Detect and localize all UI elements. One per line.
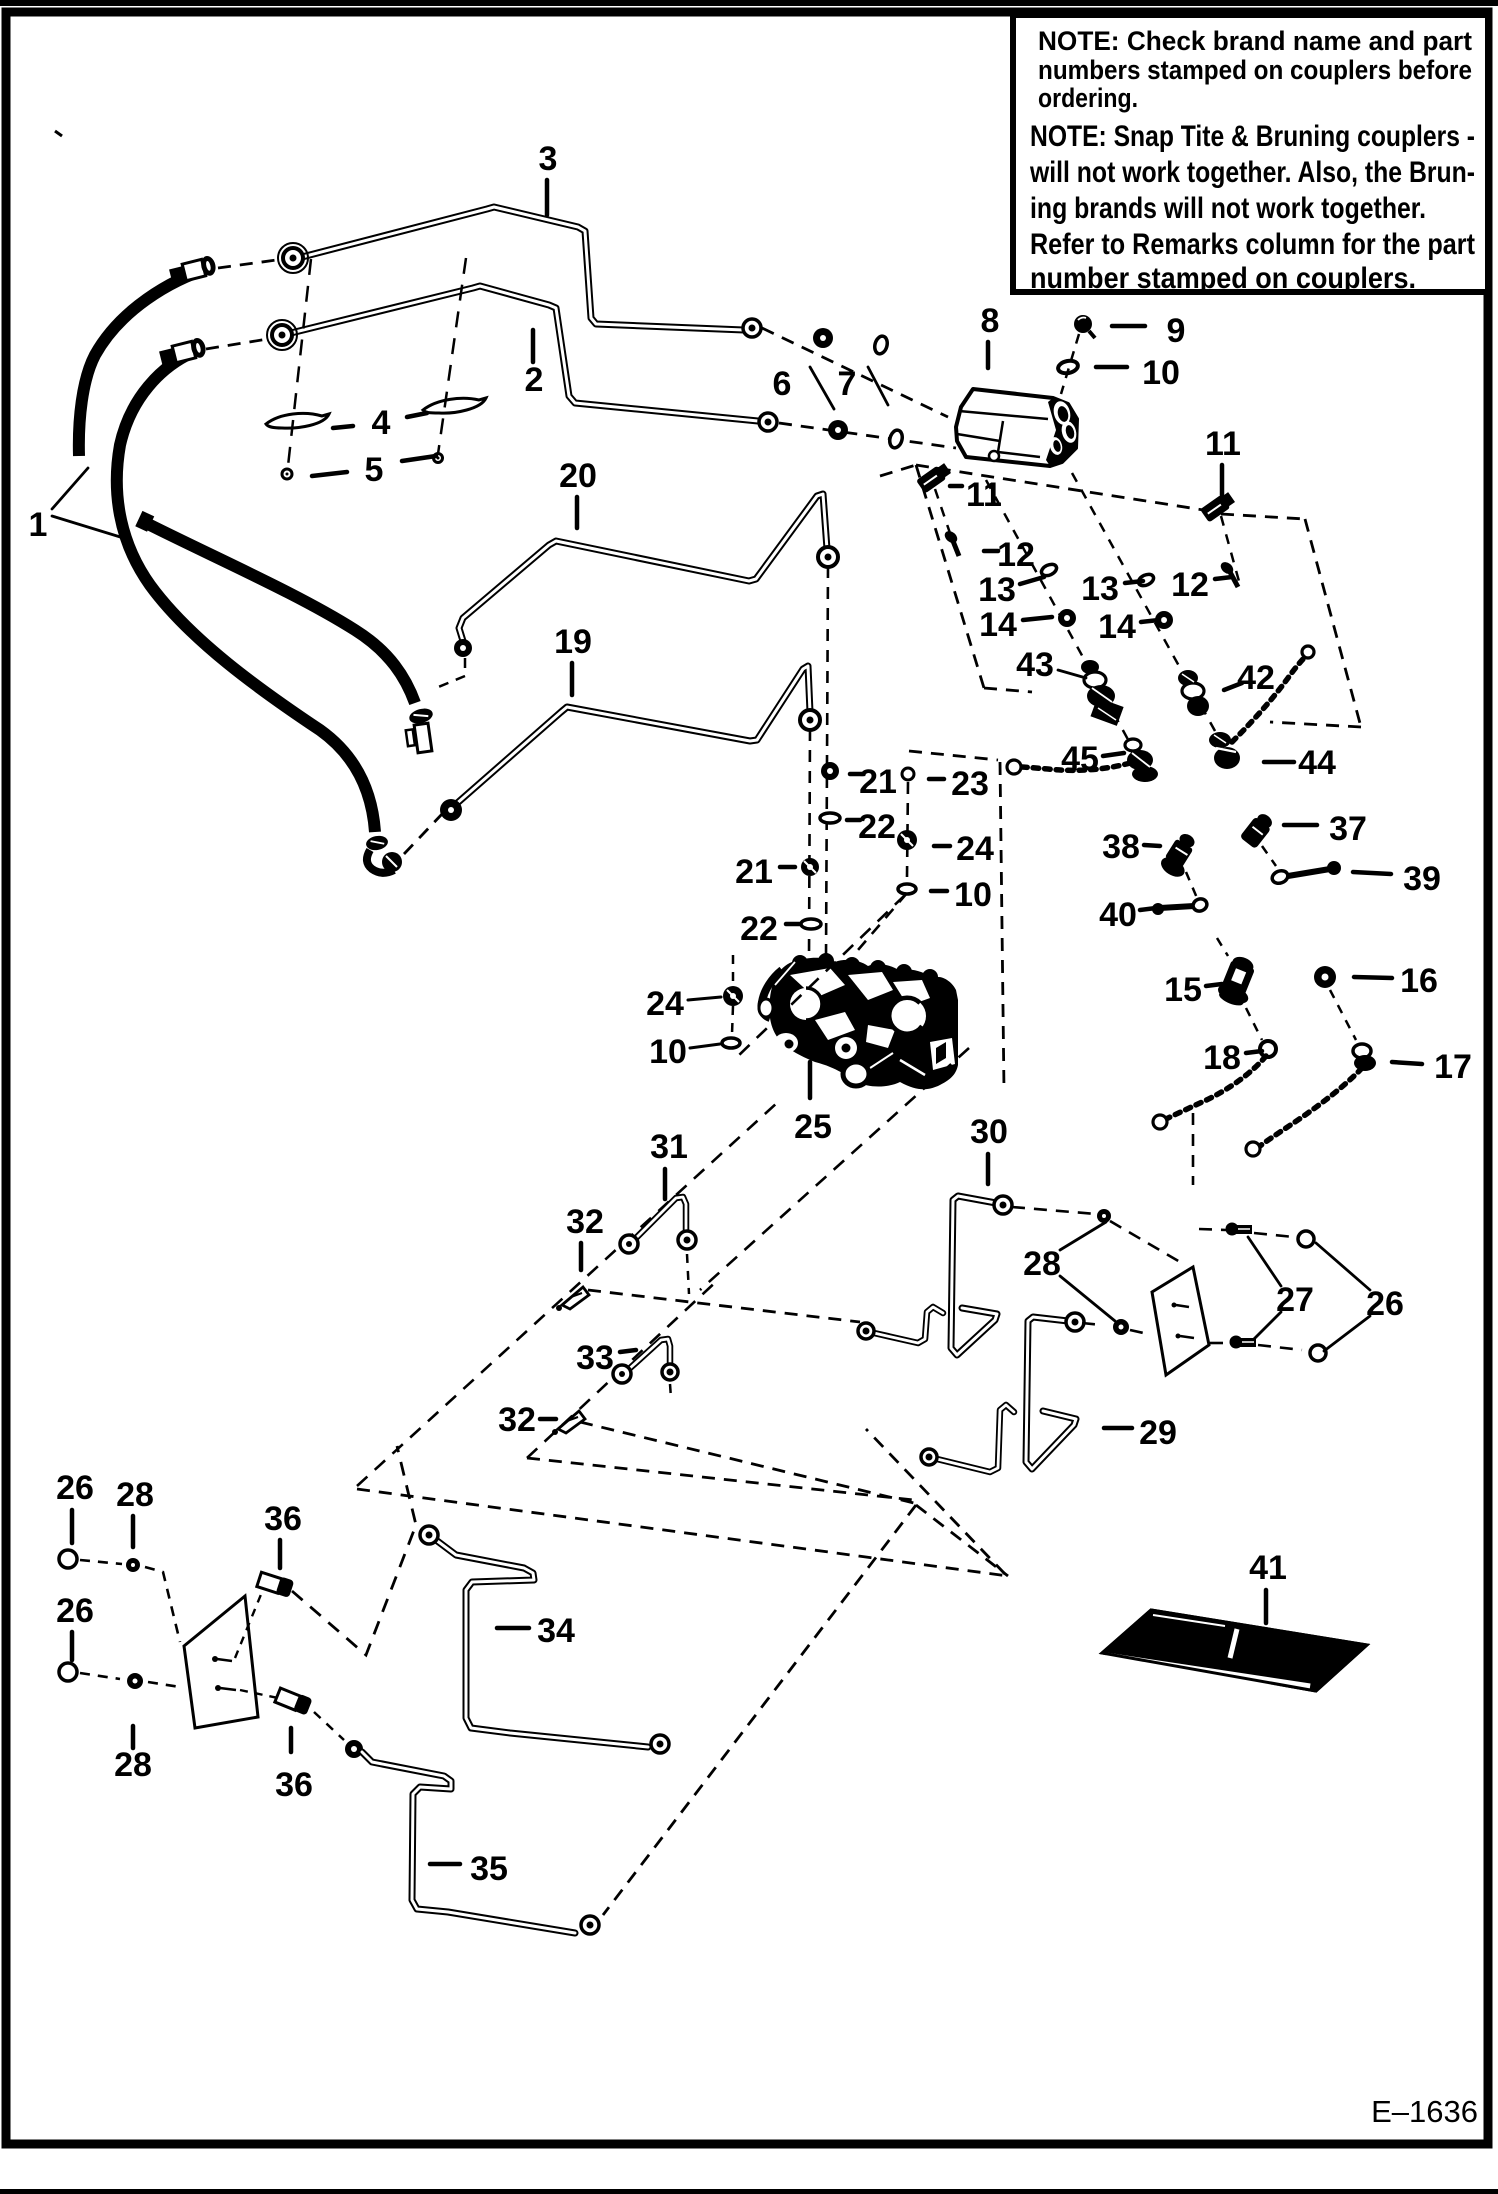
- svg-text:3: 3: [539, 140, 558, 178]
- svg-text:36: 36: [275, 1766, 313, 1804]
- svg-text:20: 20: [559, 457, 597, 495]
- svg-text:4: 4: [372, 404, 391, 442]
- svg-text:26: 26: [1366, 1285, 1404, 1323]
- svg-text:25: 25: [794, 1108, 832, 1146]
- svg-text:number stamped on couplers.: number stamped on couplers.: [1030, 262, 1416, 295]
- svg-text:34: 34: [537, 1612, 575, 1650]
- svg-text:Refer to Remarks column for th: Refer to Remarks column for the part: [1030, 228, 1475, 261]
- svg-text:8: 8: [981, 302, 1000, 340]
- svg-text:42: 42: [1237, 659, 1275, 697]
- svg-text:19: 19: [554, 623, 592, 661]
- svg-text:16: 16: [1400, 962, 1438, 1000]
- svg-text:30: 30: [970, 1113, 1008, 1151]
- svg-text:10: 10: [954, 876, 992, 914]
- svg-text:29: 29: [1139, 1414, 1177, 1452]
- svg-text:10: 10: [649, 1033, 687, 1071]
- svg-text:17: 17: [1434, 1048, 1472, 1086]
- svg-text:13: 13: [978, 571, 1016, 609]
- svg-text:33: 33: [576, 1339, 614, 1377]
- svg-text:45: 45: [1061, 740, 1099, 778]
- svg-text:15: 15: [1164, 971, 1202, 1009]
- svg-text:12: 12: [1171, 566, 1209, 604]
- svg-text:11: 11: [1205, 425, 1241, 463]
- svg-text:22: 22: [740, 910, 778, 948]
- svg-text:31: 31: [650, 1128, 688, 1166]
- svg-text:14: 14: [979, 606, 1017, 644]
- svg-text:23: 23: [951, 765, 989, 803]
- svg-text:numbers stamped on couplers be: numbers stamped on couplers before: [1038, 55, 1472, 85]
- svg-text:ordering.: ordering.: [1038, 83, 1138, 113]
- svg-text:NOTE: Snap Tite & Bruning coup: NOTE: Snap Tite & Bruning couplers -: [1030, 120, 1475, 153]
- svg-text:E–1636: E–1636: [1371, 2094, 1478, 2129]
- svg-text:10: 10: [1142, 354, 1180, 392]
- svg-text:18: 18: [1203, 1039, 1241, 1077]
- svg-text:27: 27: [1276, 1281, 1314, 1319]
- svg-text:28: 28: [116, 1476, 154, 1514]
- svg-text:32: 32: [498, 1401, 536, 1439]
- svg-text:12: 12: [997, 536, 1035, 574]
- svg-text:21: 21: [735, 853, 773, 891]
- svg-text:43: 43: [1016, 646, 1054, 684]
- svg-text:NOTE: Check brand name and par: NOTE: Check brand name and part: [1038, 26, 1472, 56]
- svg-text:1: 1: [29, 506, 48, 544]
- svg-text:9: 9: [1167, 312, 1186, 350]
- svg-text:28: 28: [1023, 1245, 1061, 1283]
- svg-text:24: 24: [646, 985, 684, 1023]
- svg-text:35: 35: [470, 1850, 508, 1888]
- svg-text:6: 6: [773, 365, 792, 403]
- svg-text:28: 28: [114, 1746, 152, 1784]
- svg-text:44: 44: [1298, 744, 1336, 782]
- svg-text:40: 40: [1099, 896, 1137, 934]
- svg-text:24: 24: [956, 830, 994, 868]
- svg-text:14: 14: [1098, 608, 1136, 646]
- svg-text:2: 2: [525, 361, 544, 399]
- svg-text:36: 36: [264, 1500, 302, 1538]
- svg-text:21: 21: [859, 763, 897, 801]
- svg-text:13: 13: [1081, 570, 1119, 608]
- svg-text:will not work together. Also,: will not work together. Also, the Brun-: [1029, 156, 1475, 189]
- svg-text:41: 41: [1249, 1549, 1287, 1587]
- svg-text:ing brands will not work toget: ing brands will not work together.: [1030, 192, 1426, 225]
- svg-text:11: 11: [966, 476, 1002, 514]
- svg-text:5: 5: [365, 451, 384, 489]
- svg-text:39: 39: [1403, 860, 1441, 898]
- svg-text:37: 37: [1329, 810, 1367, 848]
- svg-text:7: 7: [838, 365, 857, 403]
- svg-text:26: 26: [56, 1469, 94, 1507]
- svg-text:22: 22: [858, 808, 896, 846]
- svg-text:32: 32: [566, 1203, 604, 1241]
- svg-text:26: 26: [56, 1592, 94, 1630]
- svg-text:38: 38: [1102, 828, 1140, 866]
